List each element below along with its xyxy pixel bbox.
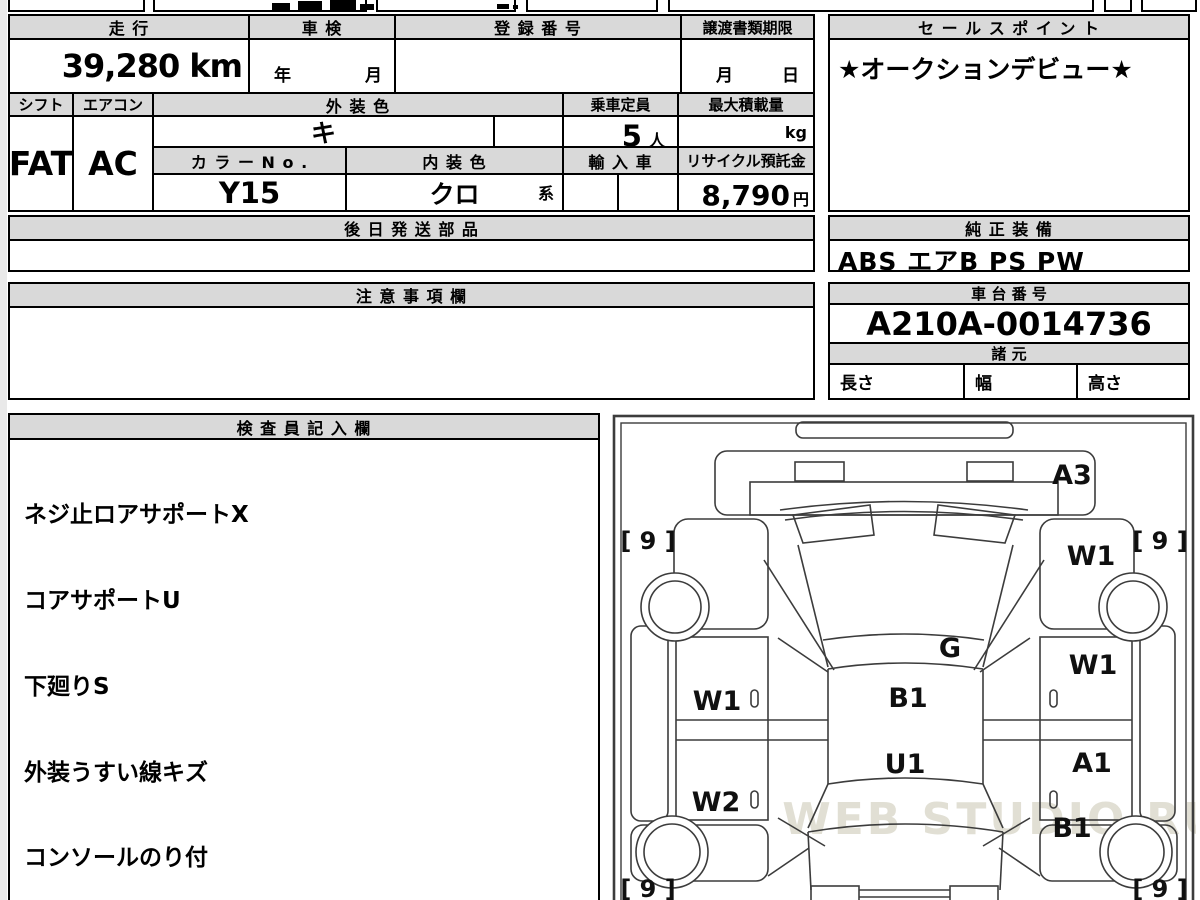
interior-color-header: 内 装 色 [347, 148, 564, 175]
registration-value [396, 40, 682, 94]
mileage-header: 走 行 [10, 16, 250, 40]
tire-grade-front-left: [ 9 ] [620, 527, 675, 555]
capacity-number: 5 [622, 119, 642, 148]
later-parts-header: 後 日 発 送 部 品 [10, 217, 813, 241]
sales-point-header: セ ー ル ス ポ イ ン ト [830, 16, 1188, 40]
later-parts-box: 後 日 発 送 部 品 [8, 215, 815, 272]
deadline-value: 月 日 [682, 40, 813, 94]
damage-label-left-rear-door: W2 [692, 787, 741, 818]
truncated-cell [1141, 0, 1197, 12]
capacity-unit: 人 [649, 127, 665, 148]
inspector-item: 外装うすい線キズ [24, 759, 592, 788]
tire-grade-front-right: [ 9 ] [1132, 527, 1187, 555]
inspector-item: ネジ止ロアサポートX [24, 501, 592, 530]
exterior-color-extra-cell [495, 117, 564, 148]
import-value-right [619, 175, 679, 210]
deadline-header: 譲渡書類期限 [682, 16, 813, 40]
color-no-header: カ ラ ー N o . [154, 148, 347, 175]
aircon-header: エアコン [74, 94, 154, 117]
tire-grade-rear-left: [ 9 ] [620, 875, 675, 900]
sales-point-box: セ ー ル ス ポ イ ン ト ★オークションデビュー★ [828, 14, 1190, 212]
max-load-value: kg [679, 117, 813, 148]
import-value-left [564, 175, 619, 210]
damage-label-left-front-door: W1 [693, 686, 742, 717]
damage-label-roof: B1 [888, 683, 927, 714]
clipped-glyph-fragment [360, 4, 374, 10]
inspector-item: コアサポートU [24, 587, 592, 616]
capacity-value: 5 人 [564, 117, 679, 148]
shift-header: シフト [10, 94, 74, 117]
recycle-unit: 円 [793, 186, 809, 210]
color-no-value: Y15 [154, 175, 347, 210]
inspection-value: 年 月 [250, 40, 396, 94]
aircon-value: AC [74, 117, 154, 210]
recycle-amount: 8,790 [701, 179, 790, 210]
max-load-header: 最大積載量 [679, 94, 813, 117]
clipped-glyph-fragment [272, 3, 290, 10]
inspection-year-unit: 年 [274, 61, 291, 86]
equipment-box: 純 正 装 備 ABS エアB PS PW [828, 215, 1190, 272]
recycle-value: 8,790 円 [679, 175, 813, 210]
clipped-glyph-fragment [330, 0, 356, 10]
damage-label-windshield: G [939, 633, 961, 664]
recycle-header: リサイクル預託金 [679, 148, 813, 175]
capacity-header: 乗車定員 [564, 94, 679, 117]
inspector-header: 検 査 員 記 入 欄 [10, 415, 598, 440]
equipment-header: 純 正 装 備 [830, 217, 1188, 241]
damage-label-front-right-fender: W1 [1067, 541, 1116, 572]
deadline-month-unit: 月 [716, 61, 733, 86]
equipment-text: ABS エアB PS PW [838, 242, 1085, 278]
mileage-value: 39,280 km [10, 40, 250, 94]
tire-grade-rear-right: [ 9 ] [1132, 875, 1187, 900]
notes-box: 注 意 事 項 欄 [8, 282, 815, 400]
clipped-glyph-fragment [298, 1, 322, 10]
inspector-box: 検 査 員 記 入 欄 ネジ止ロアサポートX コアサポートU 下廻りS 外装うす… [8, 413, 600, 900]
truncated-cell [376, 0, 516, 12]
damage-label-right-rear-fender: B1 [1052, 813, 1091, 844]
inspection-header: 車 検 [250, 16, 396, 40]
inspector-item: コンソールのり付 [24, 844, 592, 873]
auction-sheet: 走 行 車 検 登 録 番 号 譲渡書類期限 39,280 km 年 月 月 日… [0, 0, 1200, 900]
damage-label-right-rear-door: A1 [1072, 748, 1112, 779]
shift-value: FAT [10, 117, 74, 210]
spec-height-label: 高さ [1078, 365, 1188, 398]
chassis-specs-box: 車 台 番 号 A210A-0014736 諸 元 長さ 幅 高さ [828, 282, 1190, 400]
damage-label-front-panel: A3 [1052, 460, 1092, 491]
truncated-cell [668, 0, 1094, 12]
truncated-cell [8, 0, 145, 12]
car-damage-diagram: WEB STUDIO.RU [612, 414, 1196, 900]
interior-color-text: クロ [429, 175, 479, 210]
registration-header: 登 録 番 号 [396, 16, 682, 40]
exterior-color-value: キ [154, 117, 495, 148]
interior-color-value: クロ 系 [347, 175, 564, 210]
spec-length-label: 長さ [830, 365, 965, 398]
clipped-glyph-fragment [513, 5, 518, 9]
scan-edge [0, 0, 7, 900]
damage-label-right-front-door: W1 [1069, 650, 1118, 681]
interior-color-suffix: 系 [538, 180, 554, 204]
inspector-item-list: ネジ止ロアサポートX コアサポートU 下廻りS 外装うすい線キズ コンソールのり… [24, 444, 592, 900]
vehicle-info-table: 走 行 車 検 登 録 番 号 譲渡書類期限 39,280 km 年 月 月 日… [8, 14, 815, 212]
chassis-header: 車 台 番 号 [830, 284, 1188, 305]
spec-width-label: 幅 [965, 365, 1078, 398]
specs-header: 諸 元 [830, 344, 1188, 365]
damage-label-underbody: U1 [885, 749, 926, 780]
clipped-glyph-fragment [497, 4, 509, 9]
truncated-cell [1104, 0, 1132, 12]
import-header: 輸 入 車 [564, 148, 679, 175]
chassis-number: A210A-0014736 [830, 305, 1188, 344]
inspector-item: 下廻りS [24, 673, 592, 702]
truncated-cell [526, 0, 658, 12]
deadline-day-unit: 日 [782, 61, 799, 86]
exterior-color-header: 外 装 色 [154, 94, 564, 117]
inspection-month-unit: 月 [365, 61, 382, 86]
sales-point-text: ★オークションデビュー★ [838, 50, 1133, 86]
notes-header: 注 意 事 項 欄 [10, 284, 813, 308]
